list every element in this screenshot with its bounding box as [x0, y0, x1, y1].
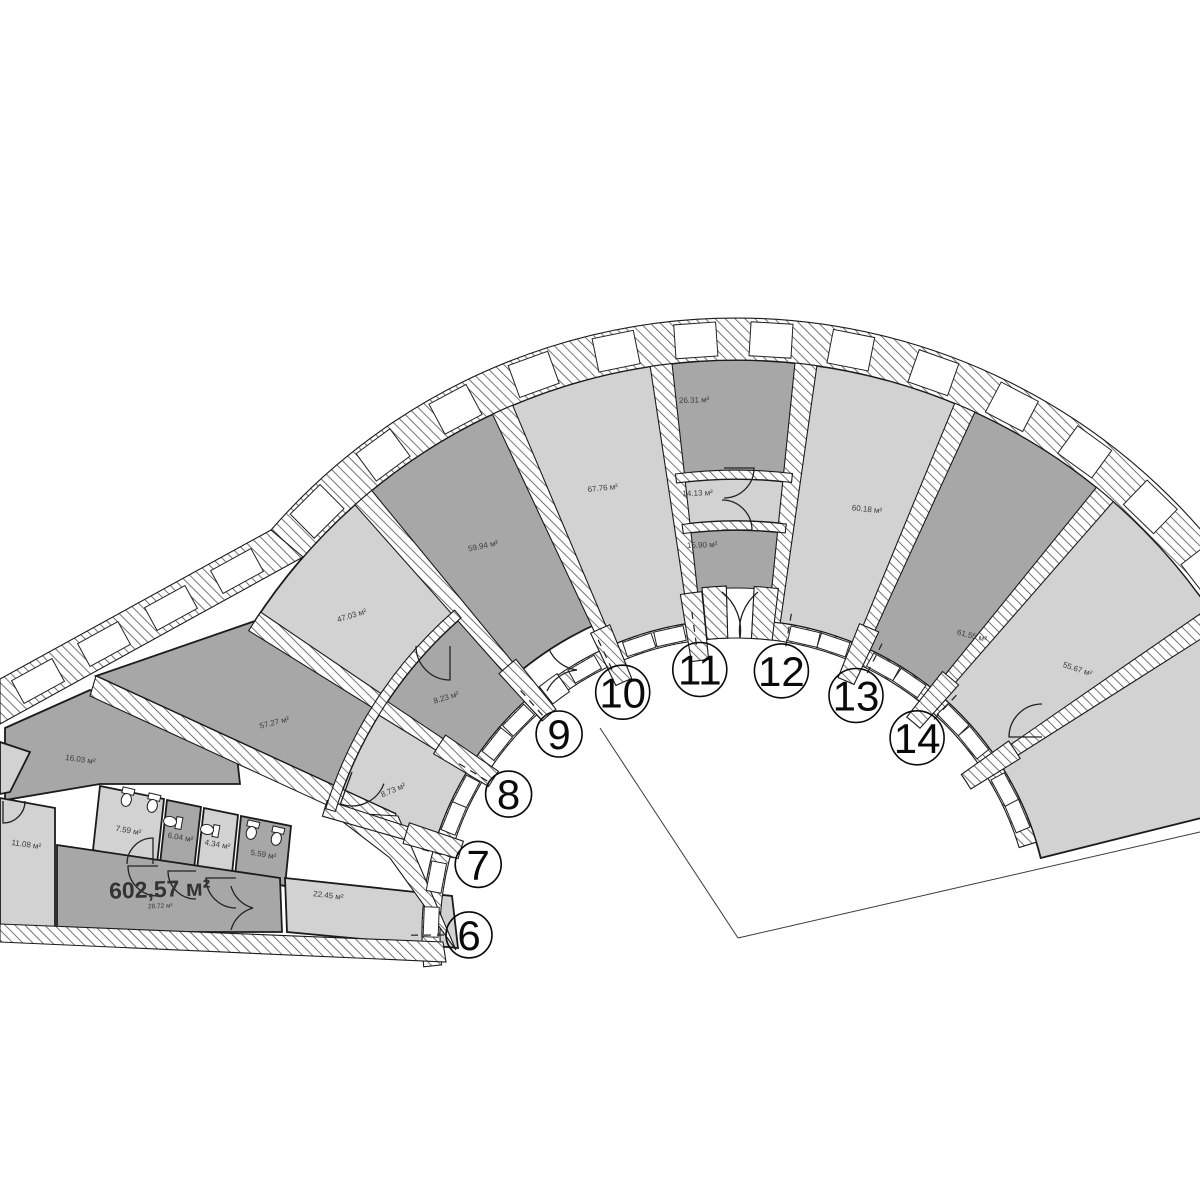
room-11-low-area-label: 15.90 м² — [687, 540, 718, 550]
unit-number-14: 14 — [894, 715, 941, 762]
window — [674, 322, 718, 359]
unit-number-13: 13 — [833, 673, 880, 720]
unit-number-12: 12 — [758, 648, 805, 695]
floor-plan-page: 55.67 м²61.55 м²60.18 м²26.31 м²14.13 м²… — [0, 0, 1200, 1200]
window — [749, 322, 793, 358]
unit-number-11: 11 — [678, 647, 722, 694]
room-12-mid-area-label: 14.13 м² — [682, 488, 713, 498]
construction-line — [738, 832, 1200, 938]
unit-number-10: 10 — [599, 669, 646, 716]
unit-number-8: 8 — [497, 771, 520, 818]
floor-plan-drawing: 55.67 м²61.55 м²60.18 м²26.31 м²14.13 м²… — [0, 0, 1200, 1200]
unit-number-9: 9 — [547, 711, 570, 758]
window — [827, 329, 875, 370]
main-area-label: 602,57 м² — [109, 874, 212, 904]
room-11-08 — [0, 798, 55, 932]
construction-line — [600, 728, 738, 938]
window — [423, 907, 439, 938]
main-area-sublabel: 28.72 м² — [148, 903, 174, 911]
unit-number-6: 6 — [457, 912, 480, 959]
room-12-top-area-label: 26.31 м² — [679, 395, 710, 405]
unit-number-7: 7 — [467, 842, 490, 889]
